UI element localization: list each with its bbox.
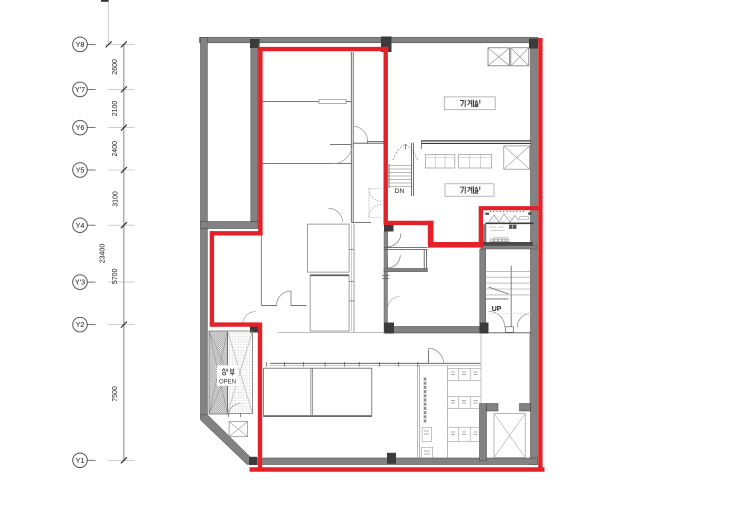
svg-text:Y5: Y5 bbox=[76, 166, 85, 175]
svg-text:Y'7: Y'7 bbox=[75, 85, 85, 94]
svg-text:Y1: Y1 bbox=[76, 456, 85, 465]
svg-text:3100: 3100 bbox=[112, 191, 119, 207]
svg-text:23400: 23400 bbox=[99, 244, 106, 264]
svg-text:Y6: Y6 bbox=[76, 123, 85, 132]
svg-text:2100: 2100 bbox=[112, 101, 119, 117]
svg-text:Y2: Y2 bbox=[76, 320, 85, 329]
svg-text:7500: 7500 bbox=[112, 386, 119, 402]
svg-text:OPEN: OPEN bbox=[219, 380, 236, 386]
svg-text:2600: 2600 bbox=[112, 59, 119, 75]
svg-text:Y4: Y4 bbox=[76, 221, 85, 230]
svg-text:2400: 2400 bbox=[112, 141, 119, 157]
svg-text:Y'3: Y'3 bbox=[75, 278, 85, 287]
svg-text:DN: DN bbox=[395, 188, 405, 195]
svg-text:5700: 5700 bbox=[112, 268, 119, 284]
svg-text:Y8: Y8 bbox=[76, 40, 85, 49]
svg-text:UP: UP bbox=[492, 306, 502, 313]
